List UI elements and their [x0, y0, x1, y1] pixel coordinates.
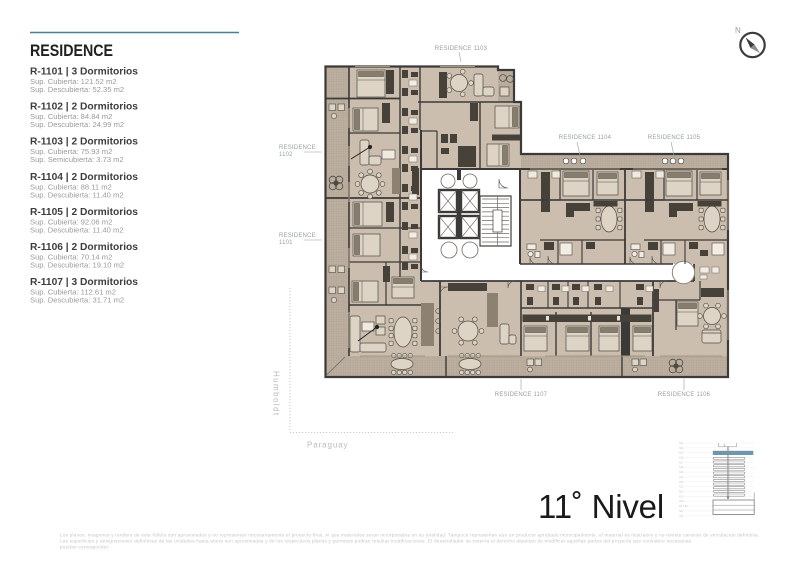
svg-text:N10: N10 [679, 495, 684, 498]
svg-text:PB 0.00: PB 0.00 [679, 505, 688, 508]
svg-text:puedan corresponder.: puedan corresponder. [60, 545, 110, 550]
svg-text:N20: N20 [679, 447, 684, 450]
svg-text:Las superficies y designacione: Las superficies y designaciones definiti… [60, 539, 692, 544]
svg-text:S01: S01 [679, 510, 684, 513]
svg-text:RESIDENCE 1105: RESIDENCE 1105 [648, 135, 701, 141]
svg-text:Los planos, imagenes y renders: Los planos, imagenes y renders de este f… [60, 533, 760, 538]
svg-text:11˚ Nivel: 11˚ Nivel [538, 488, 664, 525]
svg-text:N11: N11 [679, 491, 684, 494]
svg-text:N15: N15 [679, 471, 684, 474]
svg-text:R-1106 | 2 Dormitorios: R-1106 | 2 Dormitorios [30, 242, 138, 253]
svg-text:R-1102 | 2 Dormitorios: R-1102 | 2 Dormitorios [30, 102, 138, 113]
svg-text:Sup. Descubierta: 24.99 m2: Sup. Descubierta: 24.99 m2 [30, 120, 124, 129]
svg-text:R-1107 | 3 Dormitorios: R-1107 | 3 Dormitorios [30, 277, 138, 288]
svg-text:Sup. Descubierta: 52.35 m2: Sup. Descubierta: 52.35 m2 [30, 85, 124, 94]
svg-text:R-1105 | 2 Dormitorios: R-1105 | 2 Dormitorios [30, 207, 138, 218]
svg-text:RESIDENCE 1104: RESIDENCE 1104 [559, 135, 612, 141]
svg-text:RESIDENCE 1106: RESIDENCE 1106 [658, 392, 711, 398]
svg-text:Sup. Descubierta: 31.71 m2: Sup. Descubierta: 31.71 m2 [30, 296, 124, 305]
svg-text:N: N [735, 26, 741, 35]
svg-text:S02: S02 [679, 515, 684, 518]
svg-text:Sup. Descubierta: 11.40 m2: Sup. Descubierta: 11.40 m2 [30, 225, 124, 234]
svg-text:RESIDENCE 1103: RESIDENCE 1103 [435, 46, 488, 52]
svg-text:R-1104 | 2 Dormitorios: R-1104 | 2 Dormitorios [30, 172, 138, 183]
svg-text:RESIDENCE: RESIDENCE [30, 42, 113, 60]
svg-text:Humboldt: Humboldt [272, 371, 281, 416]
svg-text:1102: 1102 [279, 152, 293, 158]
svg-text:Sup. Descubierta: 11.40 m2: Sup. Descubierta: 11.40 m2 [30, 190, 124, 199]
svg-text:N13: N13 [679, 481, 684, 484]
svg-text:Sup. Descubierta: 19.10 m2: Sup. Descubierta: 19.10 m2 [30, 261, 124, 270]
svg-text:R-1103 | 2 Dormitorios: R-1103 | 2 Dormitorios [30, 137, 138, 148]
svg-text:N18: N18 [679, 457, 684, 460]
svg-text:N21: N21 [679, 442, 684, 445]
svg-text:N14: N14 [679, 476, 684, 479]
svg-text:1101: 1101 [279, 240, 293, 246]
svg-text:Sup. Semicubierta: 3.73 m2: Sup. Semicubierta: 3.73 m2 [30, 155, 124, 164]
svg-text:N17: N17 [679, 461, 684, 464]
svg-text:RESIDENCE: RESIDENCE [279, 233, 316, 239]
svg-text:N09: N09 [679, 500, 684, 503]
svg-text:N19: N19 [679, 452, 684, 455]
svg-text:R-1101 | 3 Dormitorios: R-1101 | 3 Dormitorios [30, 67, 138, 78]
svg-text:RESIDENCE 1107: RESIDENCE 1107 [495, 392, 548, 398]
svg-text:Paraguay: Paraguay [307, 440, 348, 449]
svg-text:RESIDENCE: RESIDENCE [279, 145, 316, 151]
svg-text:N12: N12 [679, 486, 684, 489]
svg-text:N16: N16 [679, 466, 684, 469]
